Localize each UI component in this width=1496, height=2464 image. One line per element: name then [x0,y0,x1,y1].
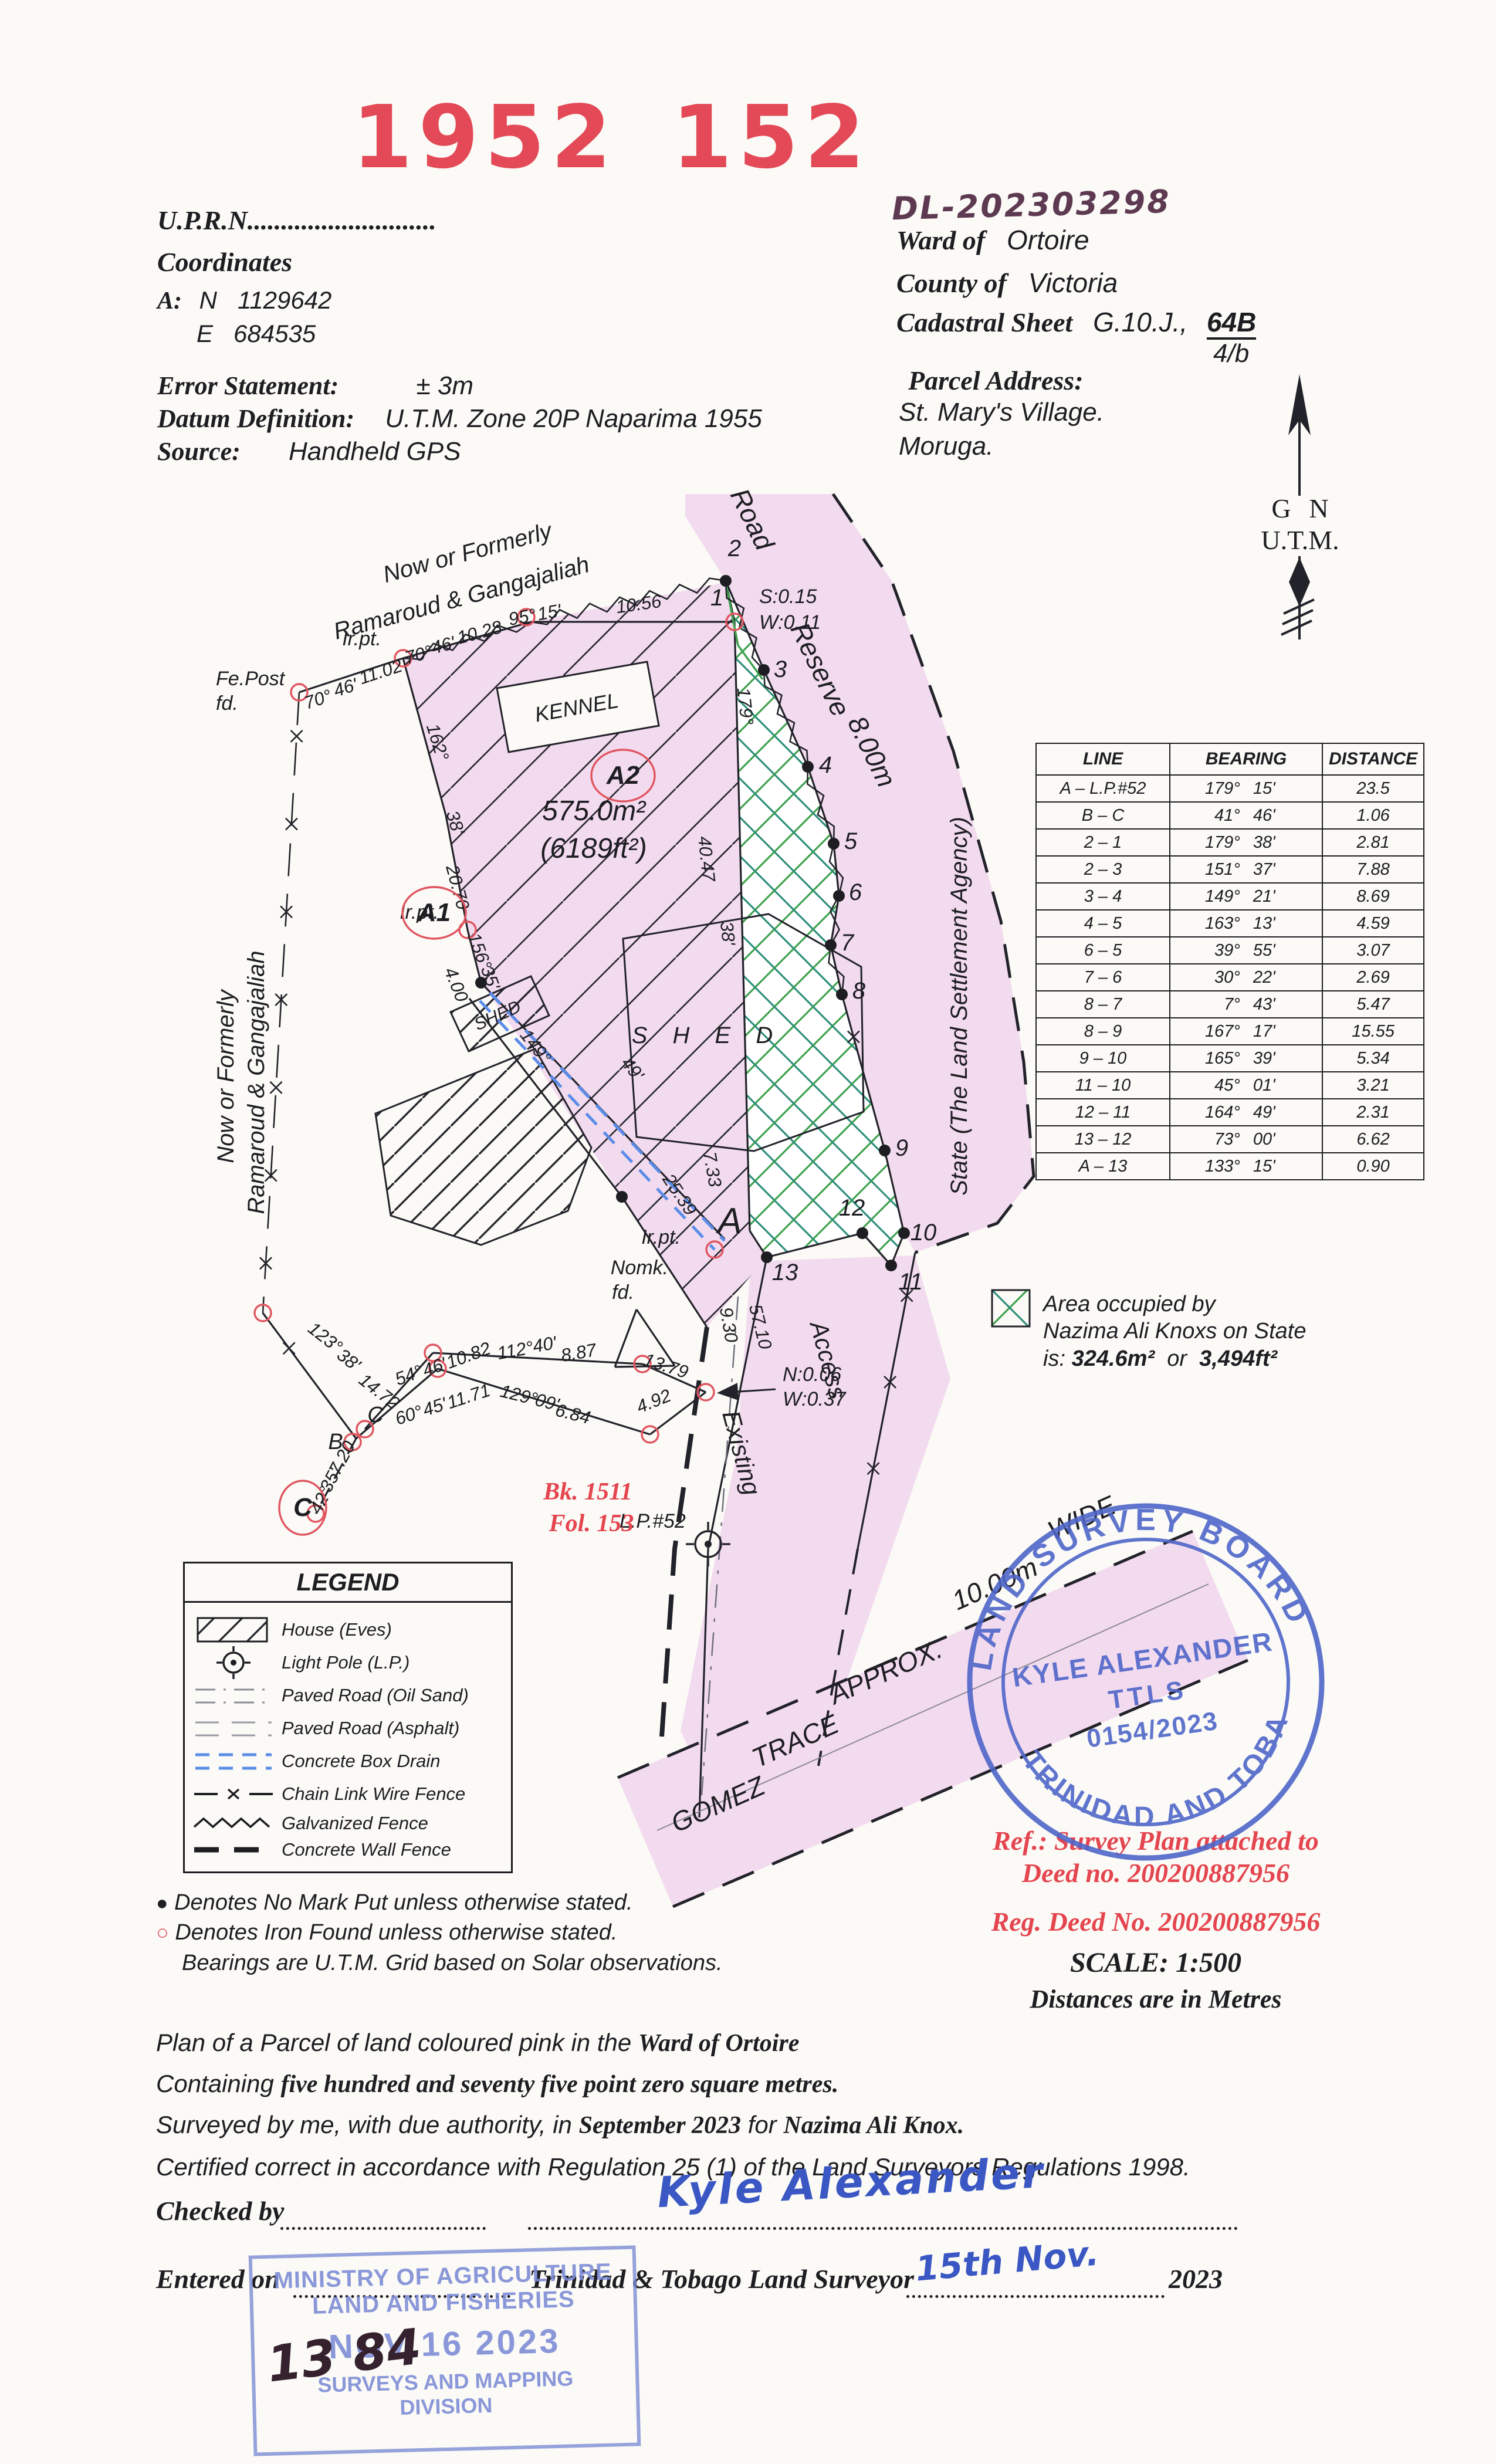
drawing-label: 179° [733,686,758,726]
legend-item-light-pole: Light Pole (L.P.) [185,1646,511,1679]
certification-line: Surveyed by me, with due authority, in S… [156,2111,964,2140]
table-row: 12 – 11164°49'2.31 [1036,1099,1424,1126]
units-label: Distances are in Metres [927,1984,1385,2014]
state-area-note: Area occupied by Nazima Ali Knoxs on Sta… [1043,1291,1306,1372]
drawing-label: C [367,1403,384,1427]
drawing-label: 6.84 [553,1400,593,1429]
drawing-label: 4.00 [440,964,472,1005]
drawing-label: 11.71 [445,1380,493,1413]
drawing-label: 15' [536,600,563,625]
light-pole-icon [705,1541,712,1548]
no-mark-point [616,1191,628,1203]
drawing-label: Fol. 153 [549,1510,634,1537]
note-bearings: Bearings are U.T.M. Grid based on Solar … [182,1948,723,1978]
drawing-label: 9 [895,1135,908,1161]
drawing-label: 54° [392,1361,425,1390]
signature-dotline [528,2227,1238,2230]
oil-sand-road-icon [185,1680,282,1711]
drawing-label: 13 [772,1260,798,1285]
legend-label: Concrete Wall Fence [282,1839,451,1860]
no-mark-point [828,838,840,849]
parcel-id-label: A1 [417,898,451,927]
table-row: A – 13133°15'0.90 [1036,1153,1424,1180]
drawing-label: A [715,1201,742,1241]
checked-by-dotline [280,2227,486,2230]
paragraph-segment: Nazima Ali Knox. [783,2112,964,2139]
table-row: 9 – 10165°39'5.34 [1036,1045,1424,1072]
checked-by-label: Checked by [156,2195,284,2226]
boundary-line [615,1309,637,1367]
reg-deed-line: Reg. Deed No. 200200887956 [927,1905,1385,1938]
drawing-label: 46' [331,674,360,701]
paragraph-segment: Ward of Ortoire [638,2030,800,2057]
certification-line: Containing five hundred and seventy five… [156,2070,838,2099]
drawing-label: 10 [911,1220,937,1245]
drawing-label: Nomk. [611,1257,668,1279]
no-mark-point [879,1145,891,1156]
legend-label: Paved Road (Oil Sand) [282,1685,469,1706]
drawing-label: 1 [710,585,723,611]
no-mark-point [825,939,837,951]
legend-item-chain-link-fence: Chain Link Wire Fence [185,1778,511,1810]
drawing-label: (6189ft²) [540,833,647,864]
area-sqm-value: 324.6m² [1072,1346,1155,1371]
table-row: 7 – 630°22'2.69 [1036,964,1424,991]
paragraph-segment: for [741,2111,783,2138]
no-mark-point [885,1260,897,1271]
drawing-label: 38' [716,920,739,947]
no-mark-point [836,989,848,1000]
house-swatch-icon [185,1615,282,1645]
table-row: 2 – 3151°37'7.88 [1036,856,1424,883]
table-row: 13 – 1273°00'6.62 [1036,1126,1424,1153]
note-no-mark: ● Denotes No Mark Put unless otherwise s… [156,1888,723,1918]
legend-label: Concrete Box Drain [282,1751,441,1772]
no-mark-point [898,1227,910,1239]
area-note-line2: Nazima Ali Knoxs on State [1043,1318,1306,1345]
drawing-label: 4.92 [634,1385,674,1417]
no-mark-point [758,664,770,676]
drawing-label: Ramaroud & Gangajaliah [243,950,269,1214]
legend-label: Light Pole (L.P.) [282,1652,409,1673]
drawing-label: 4 [819,752,832,778]
drawing-label: State (The Land Settlement Agency) [946,817,972,1196]
drawing-label: 11.02 [357,655,405,689]
table-row: 3 – 4149°21'8.69 [1036,883,1424,910]
legend-label: Chain Link Wire Fence [282,1783,465,1805]
plan-notes: ● Denotes No Mark Put unless otherwise s… [156,1888,723,1978]
galvanized-fence-icon [185,1813,282,1834]
drawing-label: Now or Formerly [213,988,239,1163]
drawing-label: 5 [844,828,858,854]
parcel-id-label: C [293,1493,313,1522]
drawing-label: fd. [612,1281,634,1304]
no-mark-point [802,761,814,773]
land-survey-board-stamp: LAND SURVEY BOARD OF TRINIDAD AND TOBAGO… [955,1491,1336,1873]
no-mark-point [761,1251,773,1263]
drawing-label: 112° [496,1337,535,1363]
legend-item-box-drain: Concrete Box Drain [185,1745,511,1778]
area-note-or: or [1155,1346,1199,1371]
table-row: 8 – 9167°17'15.55 [1036,1018,1424,1045]
table-row: 6 – 539°55'3.07 [1036,937,1424,964]
paragraph-segment: Surveyed by me, with due authority, in [156,2111,579,2138]
drawing-label: 8 [852,978,866,1004]
table-row: A – L.P.#52179°15'23.5 [1036,775,1424,802]
bearing-distance-table: LINE BEARING DISTANCE A – L.P.#52179°15'… [1035,743,1424,1180]
light-pole-icon [185,1646,282,1679]
drawing-label: 7 [841,930,855,956]
area-note-line3: is: 324.6m² or 3,494ft² [1043,1345,1306,1372]
date-dotline [906,2295,1165,2298]
drawing-label: 129° [498,1380,540,1409]
bearing-table-wrap: LINE BEARING DISTANCE A – L.P.#52179°15'… [1035,743,1424,1180]
legend-item-concrete-wall-fence: Concrete Wall Fence [185,1836,511,1863]
drawing-label: 12 [839,1195,865,1221]
no-mark-point [857,1227,868,1239]
drawing-label: S:0.15 [759,585,817,608]
note-text: Denotes No Mark Put unless otherwise sta… [174,1890,633,1915]
col-bearing: BEARING [1170,743,1322,775]
col-distance: DISTANCE [1322,743,1424,775]
drawing-label: Ir.pt. [641,1226,681,1248]
drawing-label: 2 [727,536,741,561]
drawing-label: 6 [849,879,862,905]
scale-label: SCALE: 1:500 [927,1947,1385,1979]
drawing-label: Fe.Post [216,668,286,690]
legend-label: House (Eves) [282,1619,392,1640]
table-row: 11 – 1045°01'3.21 [1036,1072,1424,1099]
note-iron-found: ○ Denotes Iron Found unless otherwise st… [156,1918,723,1948]
drawing-label: 9.30 [716,1305,742,1344]
area-note-prefix: is: [1043,1346,1072,1371]
legend-item-asphalt-road: Paved Road (Asphalt) [185,1712,511,1745]
area-note-line1: Area occupied by [1043,1291,1306,1318]
drawing-label: 60° [392,1401,425,1429]
drawing-label: 10.82 [444,1338,493,1372]
drawing-label: fd. [216,692,238,715]
legend-title: LEGEND [185,1563,511,1603]
table-row: 2 – 1179°38'2.81 [1036,829,1424,856]
table-row: B – C41°46'1.06 [1036,802,1424,829]
drawing-label: 3 [774,656,787,682]
drawing-label: N [1309,493,1328,523]
table-row: 4 – 5163°13'4.59 [1036,910,1424,937]
parcel-id-label: A2 [606,761,640,790]
state-area-swatch-icon [990,1288,1031,1328]
paragraph-segment: Containing [156,2070,280,2097]
paragraph-segment: Plan of a Parcel of land coloured pink i… [156,2029,638,2056]
drawing-label: 40' [531,1332,559,1357]
col-line: LINE [1036,743,1170,775]
drawing-label: G [1271,493,1291,523]
stamp-ttls: TTLS [1106,1676,1188,1715]
chain-link-fence-icon [185,1782,282,1806]
box-drain-icon [185,1746,282,1776]
legend-box: LEGEND House (Eves) [183,1562,513,1873]
drawing-label: Ir.pt. [342,628,381,650]
legend-label: Galvanized Fence [282,1813,428,1834]
drawing-label: W:0.11 [759,611,821,634]
paragraph-segment: five hundred and seventy five point zero… [280,2071,838,2098]
note-text: Bearings are U.T.M. Grid based on Solar … [182,1951,723,1975]
no-mark-point [833,890,845,902]
open-circle-icon: ○ [156,1920,169,1944]
drawing-label: S H E D [632,1023,782,1048]
stamp-number: 0154/2023 [1085,1707,1220,1754]
asphalt-road-icon [185,1713,282,1744]
table-row: 8 – 77°43'5.47 [1036,991,1424,1018]
survey-plan-page: 1952 152 U.P.R.N........................… [0,0,1496,2464]
drawing-label: 11 [898,1269,923,1295]
concrete-wall-fence-icon [185,1841,282,1859]
signature-year: 2023 [1169,2263,1223,2294]
note-text: Denotes Iron Found unless otherwise stat… [175,1920,617,1945]
legend-item-house: House (Eves) [185,1613,511,1646]
legend-item-oil-sand-road: Paved Road (Oil Sand) [185,1679,511,1712]
paragraph-segment: September 2023 [579,2112,741,2139]
certification-line: Plan of a Parcel of land coloured pink i… [156,2029,799,2057]
drawing-label: U.T.M. [1261,525,1339,555]
area-sqft-value: 3,494ft² [1199,1346,1277,1371]
drawing-label: Bk. 1511 [543,1478,632,1505]
filled-dot-icon: ● [156,1892,168,1914]
legend-label: Paved Road (Asphalt) [282,1718,459,1739]
legend-item-galvanized-fence: Galvanized Fence [185,1810,511,1836]
